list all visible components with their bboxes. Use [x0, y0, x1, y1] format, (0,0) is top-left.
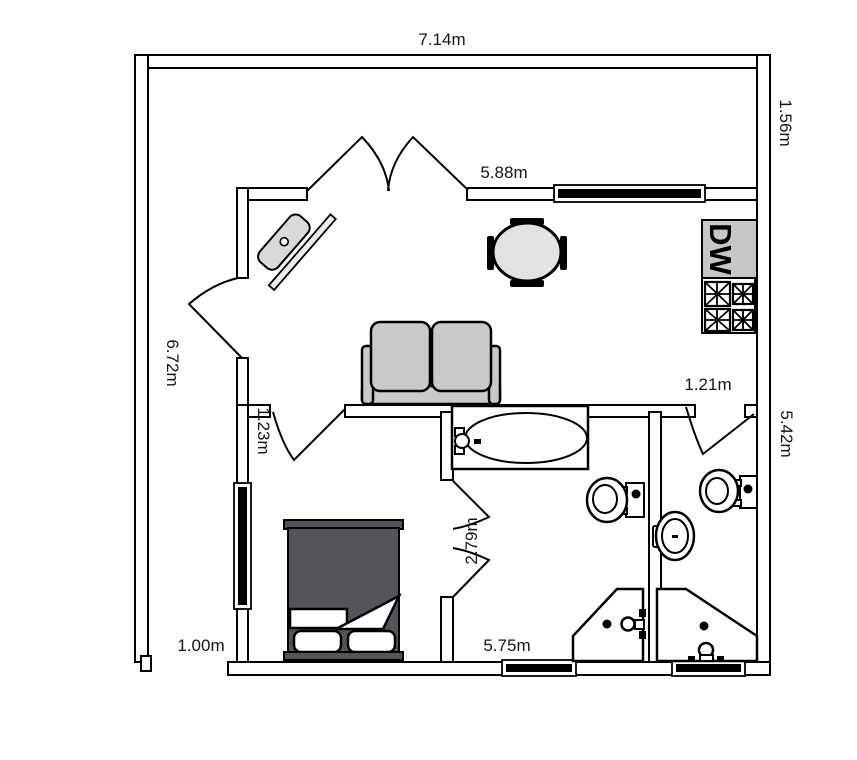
toilet-second-flush	[744, 485, 753, 494]
burner-3	[705, 309, 730, 331]
bed-pillow-right	[348, 631, 395, 652]
sofa-cushion-right	[432, 322, 491, 391]
dim-bedroom-door: 1.23m	[254, 407, 273, 454]
entry-door	[189, 278, 242, 358]
stove	[702, 278, 755, 333]
kitchen: DW	[702, 220, 757, 333]
tub-spout	[474, 439, 481, 444]
shower-main-head	[622, 618, 635, 631]
window-top	[554, 185, 705, 202]
dishwasher: DW	[702, 220, 757, 278]
window-bottom-left	[502, 660, 576, 676]
outer-wall-right	[757, 55, 770, 675]
shower-main	[573, 589, 646, 661]
bathroom-main	[452, 406, 646, 661]
floor-plan-canvas: DW	[0, 0, 857, 760]
diagonal-cabinet	[247, 195, 336, 290]
outer-wall-left-foot	[141, 656, 151, 671]
bathtub	[452, 406, 588, 469]
outer-wall-top	[135, 55, 770, 68]
burner-4	[733, 310, 753, 330]
shower-second-valve	[700, 655, 713, 661]
toilet-second	[700, 470, 757, 512]
dim-left-strip: 1.00m	[177, 636, 224, 655]
shower-second-drain	[700, 622, 709, 631]
toilet-main	[587, 478, 644, 522]
dim-top-width: 7.14m	[418, 30, 465, 49]
bed-headboard	[284, 652, 403, 660]
sofa	[362, 322, 500, 404]
bed	[284, 520, 403, 660]
floor-plan-page: DW	[0, 0, 857, 760]
dining-table	[493, 223, 561, 281]
sink-drain	[672, 535, 678, 538]
window-bedroom-left	[234, 483, 251, 609]
dim-bottom-width: 5.75m	[483, 636, 530, 655]
burner-2	[733, 284, 753, 304]
shower-second	[657, 589, 757, 662]
dim-living-width: 5.88m	[480, 163, 527, 182]
bed-pillow-left	[294, 631, 341, 652]
toilet-main-flush	[632, 490, 641, 499]
left-wall-mid	[237, 358, 248, 408]
dim-top-strip: 1.56m	[776, 99, 795, 146]
toilet-main-tank	[626, 483, 644, 517]
shower-main-valve	[635, 620, 644, 629]
dim-hall-width: 2.79m	[462, 517, 481, 564]
sofa-cushion-left	[371, 322, 430, 391]
tub-faucet	[455, 434, 469, 448]
outer-wall-left	[135, 55, 148, 662]
left-wall-upper	[237, 188, 248, 278]
dim-left-height: 6.72m	[163, 339, 182, 386]
window-bottom-right	[672, 660, 745, 676]
dim-wc-door: 1.21m	[684, 375, 731, 394]
burner-1	[705, 282, 730, 306]
french-door-right-leaf	[388, 137, 468, 191]
dining-set	[487, 218, 567, 287]
dim-right-height: 5.42m	[777, 410, 796, 457]
dishwasher-label: DW	[703, 223, 738, 275]
bathroom-second	[653, 470, 757, 662]
shower-main-drain	[603, 620, 612, 629]
french-door-left-leaf	[307, 137, 389, 191]
bedroom-door	[273, 409, 345, 460]
bed-sheet-band	[290, 609, 347, 628]
bathroom-left-wall-lower	[441, 597, 453, 662]
wc-door	[686, 407, 754, 454]
